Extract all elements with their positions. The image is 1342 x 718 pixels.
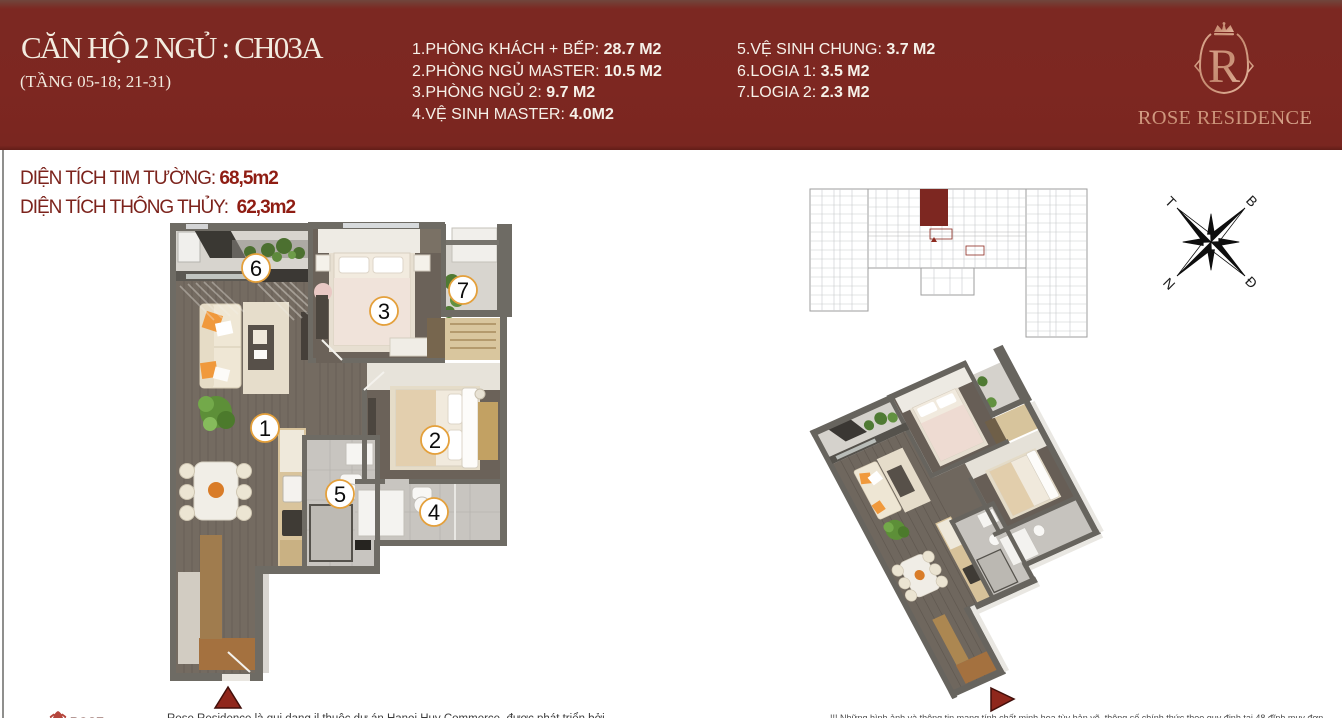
svg-text:2: 2 bbox=[429, 428, 441, 453]
svg-text:!!! Những hình ảnh và thông ti: !!! Những hình ảnh và thông tin mang tín… bbox=[830, 713, 1323, 718]
svg-text:4: 4 bbox=[428, 500, 440, 525]
svg-text:1: 1 bbox=[259, 416, 271, 441]
svg-text:5: 5 bbox=[334, 482, 346, 507]
svg-text:T: T bbox=[1162, 193, 1180, 211]
svg-text:6: 6 bbox=[250, 256, 262, 281]
svg-text:Rose Residence là qui dạng il: Rose Residence là qui dạng il thuộc dự á… bbox=[167, 713, 605, 718]
svg-text:3: 3 bbox=[378, 299, 390, 324]
svg-text:N: N bbox=[1160, 274, 1178, 292]
svg-text:7: 7 bbox=[457, 278, 469, 303]
svg-text:B: B bbox=[1243, 192, 1261, 210]
